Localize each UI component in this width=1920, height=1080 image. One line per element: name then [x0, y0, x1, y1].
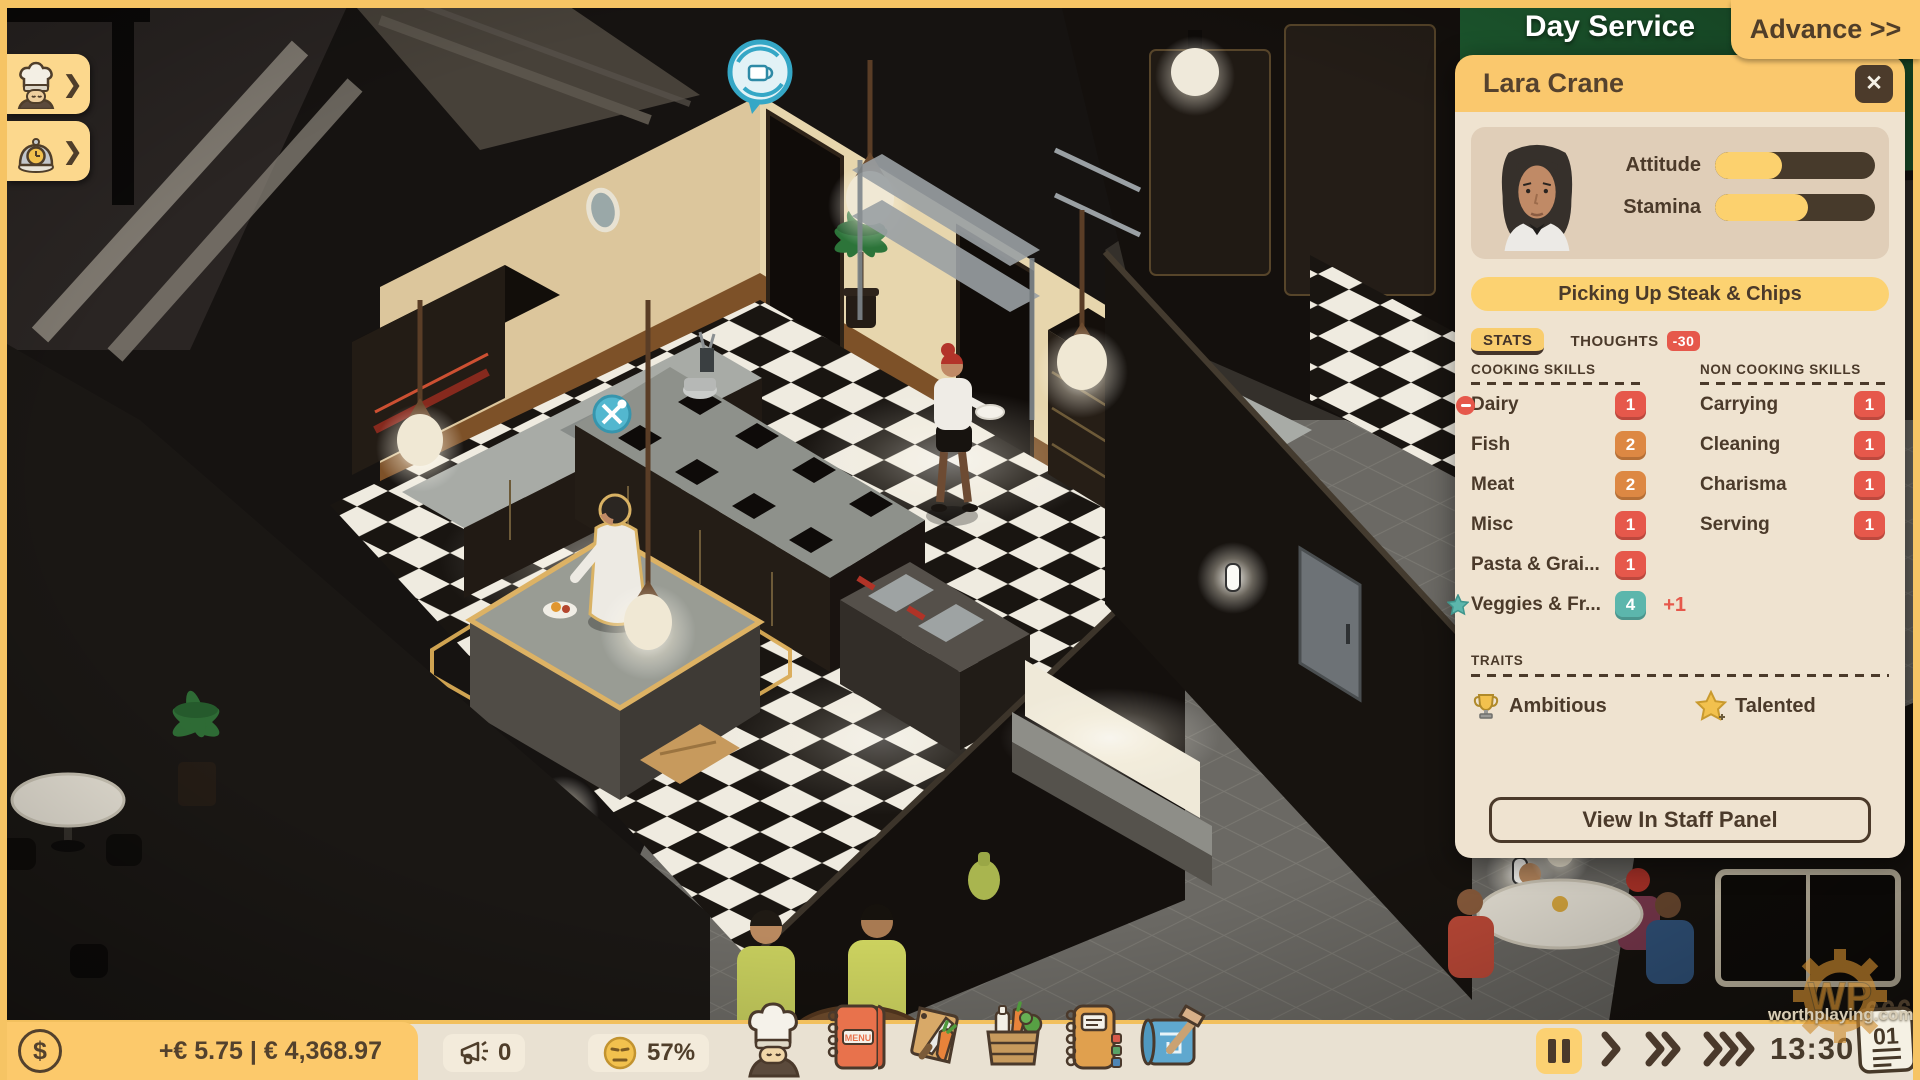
- attitude-label: Attitude: [1601, 154, 1701, 177]
- non-cooking-skills-column: NON COOKING SKILLS Carrying 1 Cleaning 1…: [1700, 362, 1885, 545]
- stock-toolbar-button[interactable]: [976, 998, 1050, 1078]
- skill-row: Dairy 1: [1471, 385, 1646, 425]
- marketing-count: 0: [498, 1039, 511, 1067]
- advance-button[interactable]: Advance >>: [1731, 0, 1920, 59]
- calendar-day: 01: [1872, 1022, 1899, 1049]
- satisfaction-indicator[interactable]: 57%: [588, 1034, 709, 1072]
- stamina-label: Stamina: [1601, 196, 1701, 219]
- megaphone-icon: [457, 1039, 489, 1067]
- sidebar-tab-service[interactable]: ❯: [6, 121, 90, 181]
- skill-row: Veggies & Fr... 4 +1: [1471, 585, 1646, 625]
- neutral-face-icon: [602, 1035, 638, 1071]
- staff-portrait: [1479, 135, 1595, 251]
- stamina-fill: [1715, 194, 1808, 221]
- thoughts-penalty-badge: -30: [1667, 331, 1701, 351]
- skill-level-badge: 1: [1854, 511, 1885, 540]
- star-plus-icon: [1695, 690, 1727, 722]
- money-display: $ +€ 5.75 | € 4,368.97: [0, 1022, 418, 1080]
- skills-section: COOKING SKILLS Dairy 1 Fish 2 Meat 2: [1471, 362, 1889, 652]
- chevron-right-icon: ❯: [63, 71, 82, 98]
- current-action-banner: Picking Up Steak & Chips: [1471, 277, 1889, 311]
- trait-ambitious: Ambitious: [1471, 690, 1695, 722]
- attitude-meter: Attitude: [1601, 151, 1875, 179]
- menu-book-icon: MENU: [816, 998, 890, 1078]
- attitude-fill: [1715, 152, 1782, 179]
- calendar-day-widget: 01: [1854, 994, 1918, 1080]
- video-frame-left: [0, 0, 7, 1080]
- fast-forward-button[interactable]: [1644, 1030, 1682, 1071]
- play-chevron-icon: [1600, 1030, 1622, 1068]
- chef-staff-icon: [736, 998, 810, 1078]
- stamina-meter: Stamina: [1601, 193, 1875, 221]
- triple-chevron-icon: [1702, 1030, 1756, 1068]
- traits-header: TRAITS: [1471, 653, 1889, 668]
- game-screen: Day Service Advance >> ❯ ❯ Lara Crane ✕: [0, 0, 1920, 1080]
- play-button[interactable]: [1600, 1030, 1622, 1071]
- trait-row: Ambitious Talented: [1471, 690, 1889, 722]
- trait-label: Talented: [1735, 695, 1816, 718]
- non-cooking-skills-header: NON COOKING SKILLS: [1700, 362, 1885, 377]
- trait-talented: Talented: [1695, 690, 1816, 722]
- view-in-staff-panel-button[interactable]: View In Staff Panel: [1489, 797, 1871, 843]
- tab-thoughts-label: THOUGHTS: [1570, 333, 1658, 350]
- menu-icon-text: MENU: [845, 1033, 872, 1043]
- skill-row: Charisma 1: [1700, 465, 1885, 505]
- cloche-clock-icon: [11, 126, 61, 176]
- skill-row: Cleaning 1: [1700, 425, 1885, 465]
- chevron-right-icon: ❯: [63, 138, 82, 165]
- tab-thoughts[interactable]: THOUGHTS -30: [1564, 330, 1706, 352]
- marketing-indicator[interactable]: 0: [443, 1034, 525, 1072]
- dashed-divider: [1471, 674, 1889, 677]
- skill-row: Fish 2: [1471, 425, 1646, 465]
- skill-level-badge: 1: [1854, 431, 1885, 460]
- prep-toolbar-button[interactable]: [896, 998, 970, 1078]
- sidebar-tab-staff[interactable]: ❯: [6, 54, 90, 114]
- tab-stats[interactable]: STATS: [1471, 328, 1544, 355]
- supply-crate-icon: [976, 998, 1050, 1078]
- cooking-skills-header: COOKING SKILLS: [1471, 362, 1646, 377]
- video-frame-top: [0, 0, 1920, 8]
- skill-level-badge: 1: [1615, 551, 1646, 580]
- skill-delta-label: +1: [1663, 594, 1686, 617]
- skill-level-badge: 1: [1615, 391, 1646, 420]
- skill-row: Serving 1: [1700, 505, 1885, 545]
- cooking-skills-column: COOKING SKILLS Dairy 1 Fish 2 Meat 2: [1471, 362, 1646, 625]
- staff-detail-panel: Lara Crane ✕ Attitude: [1455, 55, 1905, 858]
- attitude-track: [1715, 152, 1875, 179]
- day-phase-label: Day Service: [1500, 10, 1720, 44]
- skill-level-badge: 2: [1615, 471, 1646, 500]
- panel-header: Lara Crane ✕: [1455, 55, 1905, 112]
- trait-label: Ambitious: [1509, 695, 1607, 718]
- skill-level-badge: 4: [1615, 591, 1646, 620]
- currency-icon: $: [18, 1029, 62, 1073]
- build-toolbar-button[interactable]: [1136, 998, 1210, 1078]
- fastest-forward-button[interactable]: [1702, 1030, 1756, 1071]
- satisfaction-percent: 57%: [647, 1039, 695, 1067]
- skill-decrease-icon: [1456, 396, 1475, 415]
- stamina-track: [1715, 194, 1875, 221]
- skill-level-badge: 2: [1615, 431, 1646, 460]
- staff-id-card: Attitude Stamina: [1471, 127, 1889, 259]
- chef-icon: [11, 59, 61, 109]
- skill-row: Meat 2: [1471, 465, 1646, 505]
- close-button[interactable]: ✕: [1855, 65, 1893, 103]
- panel-tabs: STATS THOUGHTS -30: [1471, 324, 1706, 358]
- recipe-notebook-icon: [1056, 998, 1130, 1078]
- pause-button[interactable]: [1536, 1028, 1582, 1074]
- double-chevron-icon: [1644, 1030, 1682, 1068]
- video-frame-right: [1913, 0, 1920, 1080]
- staff-name-title: Lara Crane: [1483, 68, 1624, 99]
- staff-toolbar-button[interactable]: [736, 998, 810, 1078]
- skill-level-badge: 1: [1615, 511, 1646, 540]
- skill-row: Carrying 1: [1700, 385, 1885, 425]
- skill-row: Pasta & Grai... 1: [1471, 545, 1646, 585]
- menu-toolbar-button[interactable]: MENU: [816, 998, 890, 1078]
- trophy-icon: [1471, 691, 1501, 721]
- recipes-toolbar-button[interactable]: [1056, 998, 1130, 1078]
- clock-time: 13:30: [1770, 1031, 1854, 1067]
- money-amount: +€ 5.75 | € 4,368.97: [62, 1037, 418, 1066]
- skill-level-badge: 1: [1854, 471, 1885, 500]
- skill-row: Misc 1: [1471, 505, 1646, 545]
- skill-level-badge: 1: [1854, 391, 1885, 420]
- cutting-board-icon: [896, 998, 970, 1078]
- blueprint-hammer-icon: [1136, 998, 1210, 1078]
- skill-star-icon: [1447, 594, 1469, 616]
- panel-body: Attitude Stamina Picking Up Steak & Chip…: [1455, 112, 1905, 858]
- traits-section: TRAITS Ambitious: [1471, 653, 1889, 722]
